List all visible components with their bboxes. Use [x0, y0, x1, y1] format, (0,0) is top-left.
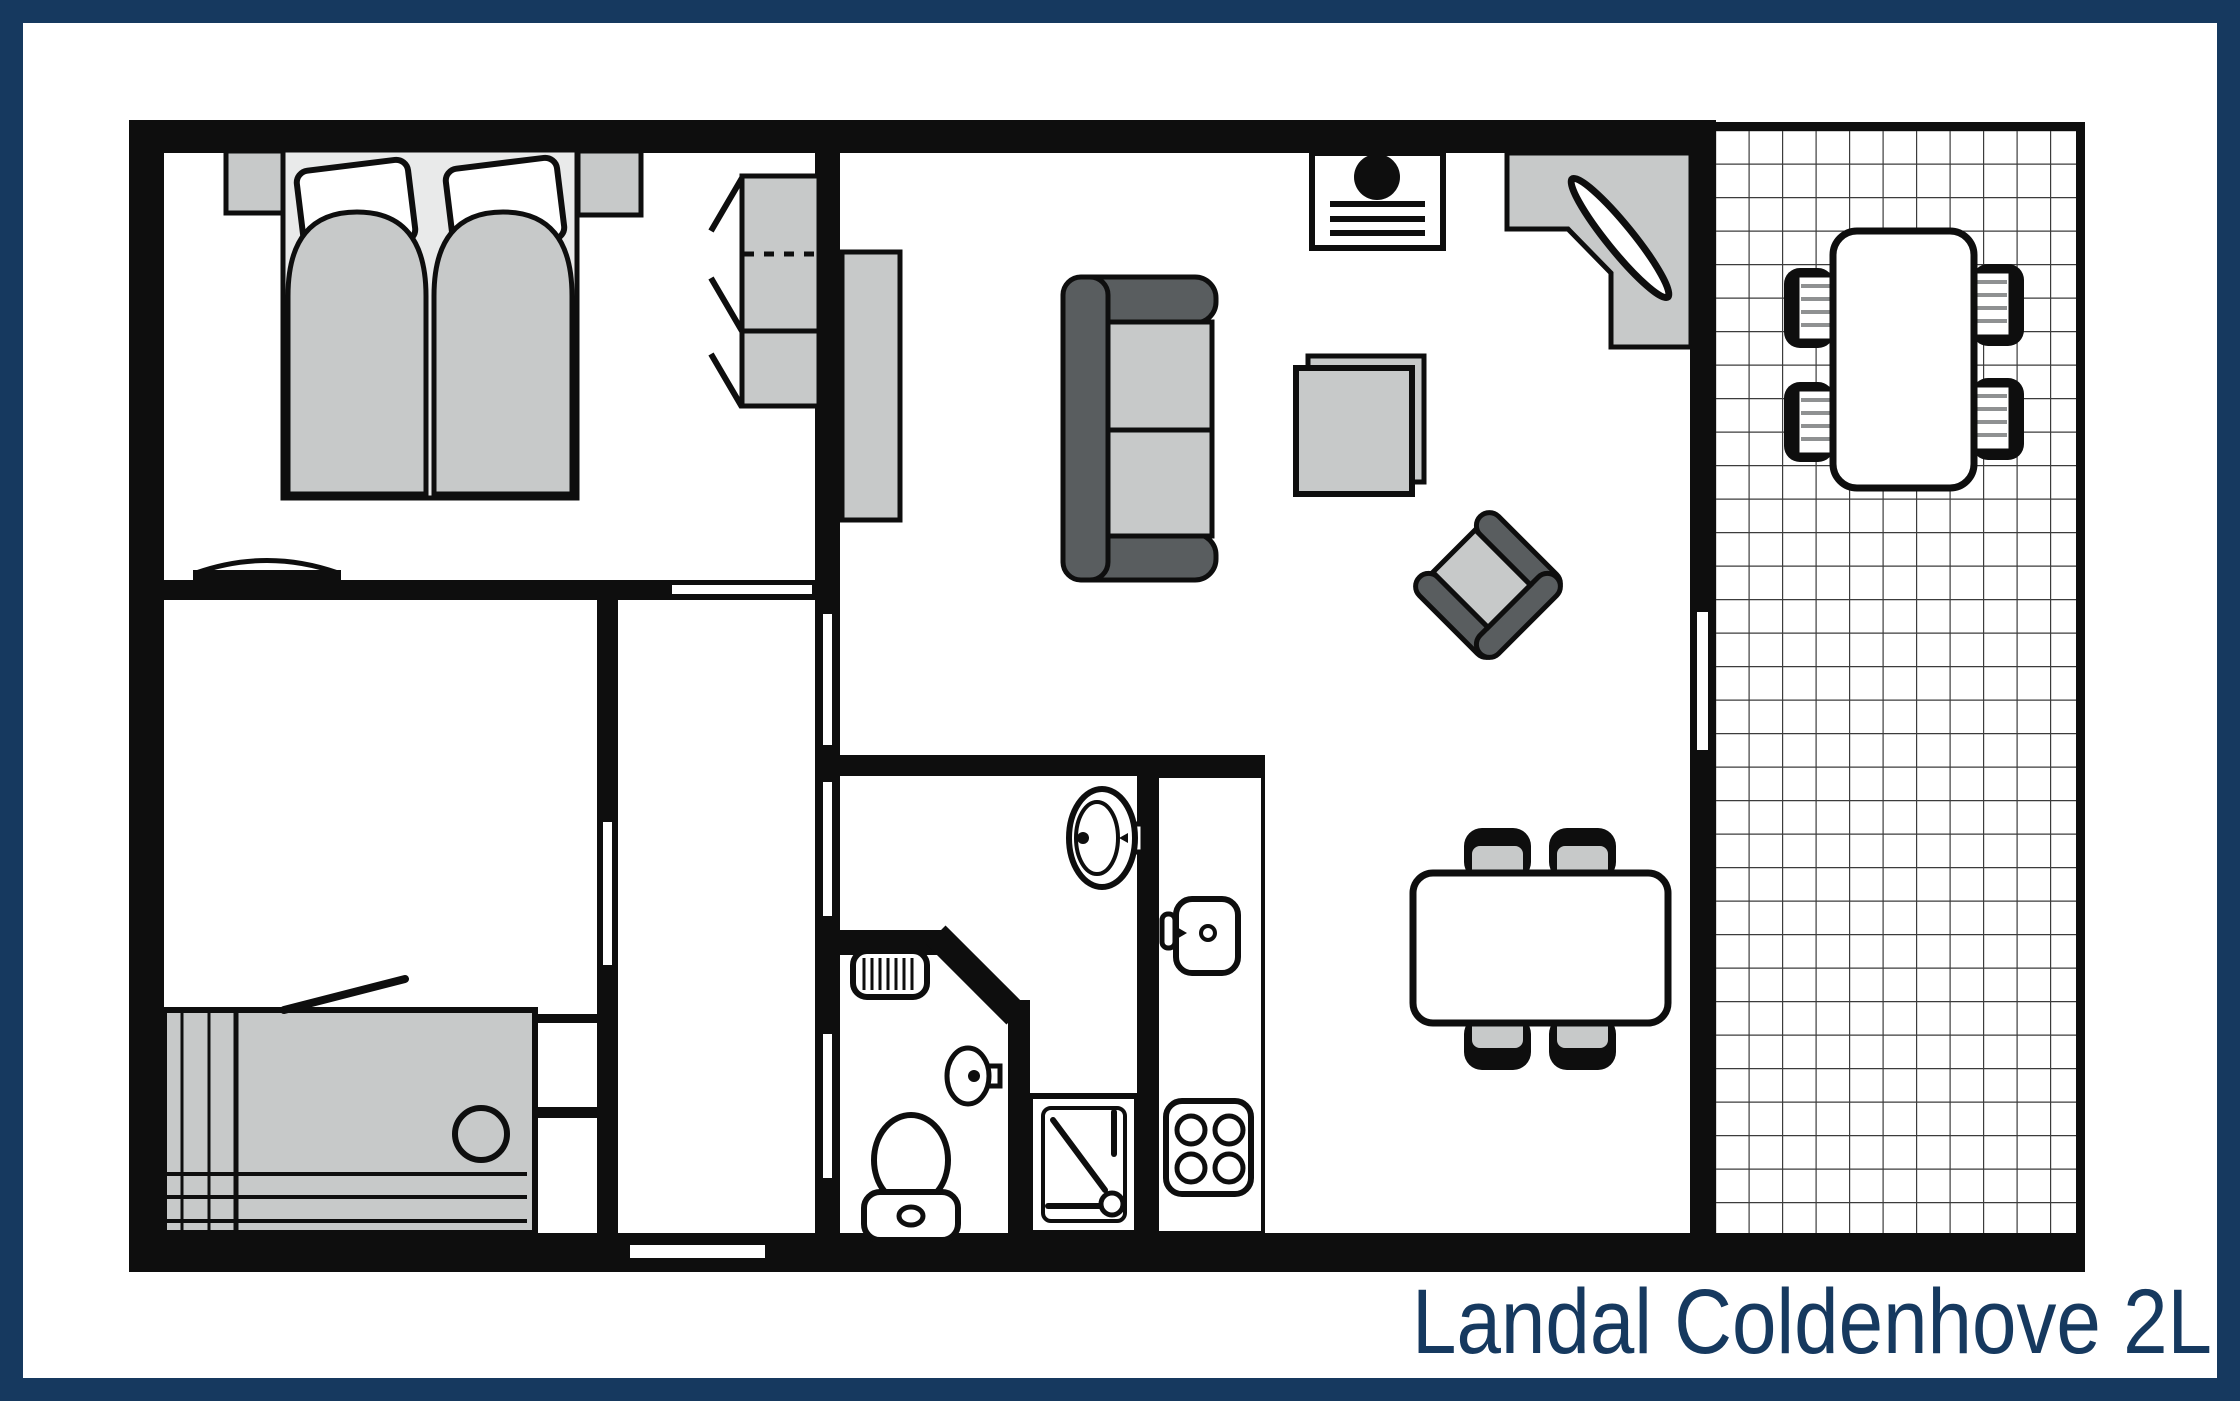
- wall-toilet-right: [1008, 1000, 1030, 1233]
- sofa: [1063, 277, 1216, 580]
- door-terrace: [1697, 612, 1708, 750]
- terrace-chair-top-left: [1784, 268, 1834, 348]
- nightstand-right: [578, 151, 641, 215]
- radiator-fins: [864, 958, 912, 990]
- plan-title: Landal Coldenhove 2L: [1412, 1271, 2212, 1373]
- sofa-cushion: [1108, 322, 1212, 430]
- wall-niche-shelf: [534, 1107, 604, 1118]
- door-bedroom1: [672, 585, 812, 594]
- toilet-bowl: [864, 1115, 958, 1240]
- opening-hall-living-room: [823, 614, 832, 745]
- wall-left: [129, 120, 164, 1272]
- wall-bottom: [129, 1233, 2085, 1272]
- shower-drain: [1101, 1193, 1123, 1215]
- bed-cushion: [455, 1108, 507, 1160]
- kitchen: [1157, 776, 1263, 1233]
- sofa-cushion: [1108, 430, 1212, 536]
- radiator: [853, 951, 927, 997]
- sofa-back: [1063, 277, 1108, 580]
- mattress-left: [288, 212, 426, 494]
- door-entrance: [630, 1245, 765, 1258]
- floor-plan-image: Landal Coldenhove 2L: [0, 0, 2240, 1401]
- tv: [1312, 153, 1443, 248]
- terrace-chair-top-right: [1972, 264, 2024, 346]
- door-bathroom: [823, 782, 832, 916]
- terrace-border-right: [2076, 122, 2085, 1233]
- terrace-chair-bottom-left: [1784, 382, 1834, 462]
- dining-table: [1413, 873, 1668, 1023]
- bedroom-2: [164, 979, 535, 1233]
- tv-mount: [1354, 154, 1400, 200]
- terrace-border-top: [1715, 122, 2085, 131]
- floor-plan-page: Landal Coldenhove 2L: [0, 0, 2240, 1401]
- nightstand-left: [226, 151, 288, 213]
- double-bed: [283, 150, 577, 498]
- toilet-button: [899, 1207, 923, 1225]
- stove: [1166, 1101, 1251, 1194]
- side-table: [1296, 356, 1424, 494]
- mattress-right: [434, 212, 572, 494]
- door-bedroom2: [603, 822, 612, 965]
- wall-bathroom-top: [838, 755, 1265, 776]
- door-toilet: [823, 1034, 832, 1178]
- shower: [1030, 1096, 1137, 1233]
- terrace: [1715, 122, 2085, 1233]
- wall-niche-top: [534, 1014, 604, 1023]
- terrace-table: [1833, 231, 1974, 488]
- bed-bedroom2: [164, 979, 535, 1233]
- sideboard: [842, 252, 900, 520]
- terrace-chair-bottom-right: [1972, 378, 2024, 460]
